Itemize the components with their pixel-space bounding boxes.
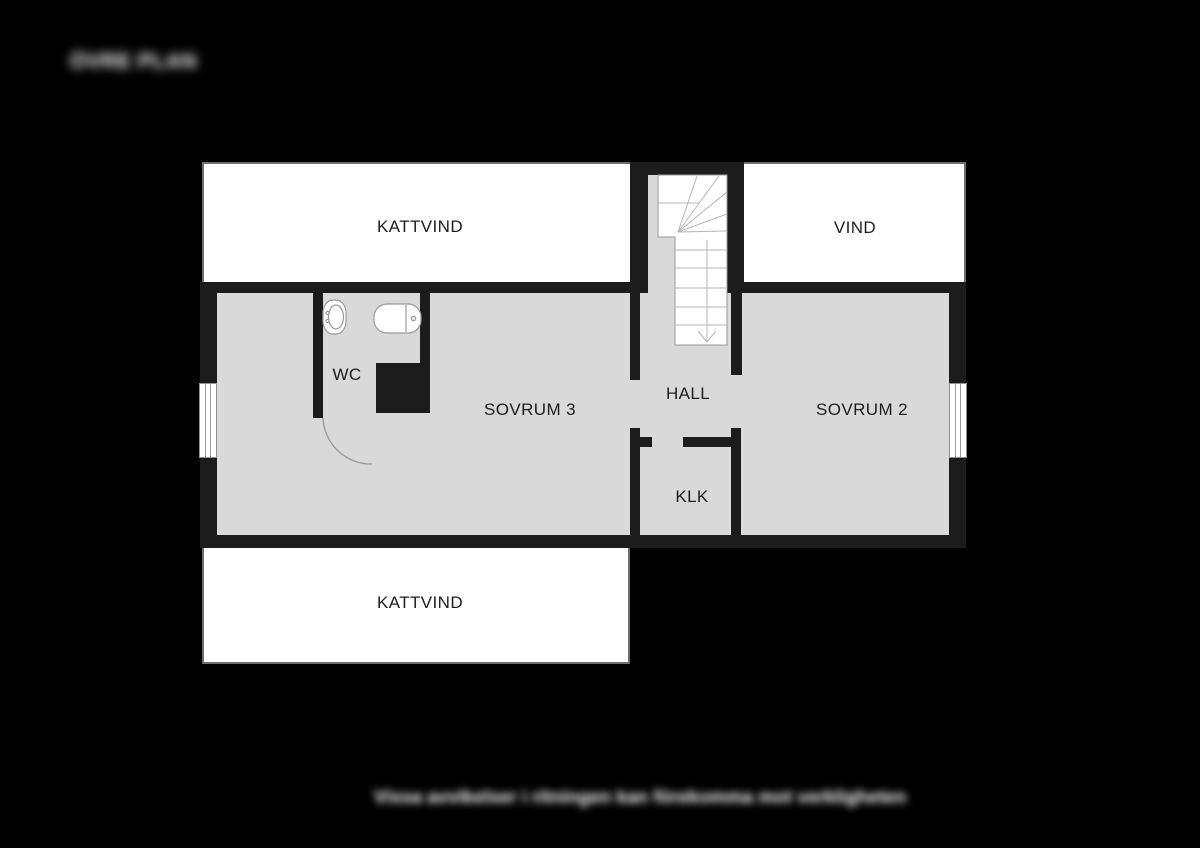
wall-top-left-segment [200,282,648,293]
floorplan-page: ÖVRE PLAN [0,0,1200,848]
disclaimer-text: Vissa avvikelser i ritningen kan förekom… [374,786,906,808]
room-label-sovrum3: SOVRUM 3 [484,400,576,420]
window-icon-left [199,383,217,458]
room-label-sovrum2: SOVRUM 2 [816,400,908,420]
room-label-kattvind-top: KATTVIND [377,217,463,237]
wall-stair-left-upper [630,162,648,283]
stair-shaft-floor [647,175,727,295]
plan-title: ÖVRE PLAN [70,50,197,74]
room-label-wc: WC [332,365,361,385]
window-icon-right [949,383,967,458]
room-label-hall: HALL [666,384,710,404]
wall-top-right-segment [726,282,966,293]
wall-stair-right-upper [726,162,744,283]
wall-wc-right [420,293,430,363]
wall-wc-left [313,293,323,418]
wall-stair-right-lower [731,283,742,375]
wall-bottom [200,535,966,548]
room-label-kattvind-bottom: KATTVIND [377,593,463,613]
wall-klk-stub [640,437,652,447]
wall-klk-top [683,437,741,447]
wall-stair-left-lower [630,283,640,380]
room-label-klk: KLK [675,487,708,507]
room-label-vind: VIND [834,218,876,238]
wall-wc-block [376,363,430,413]
wall-klk-left [630,428,640,540]
